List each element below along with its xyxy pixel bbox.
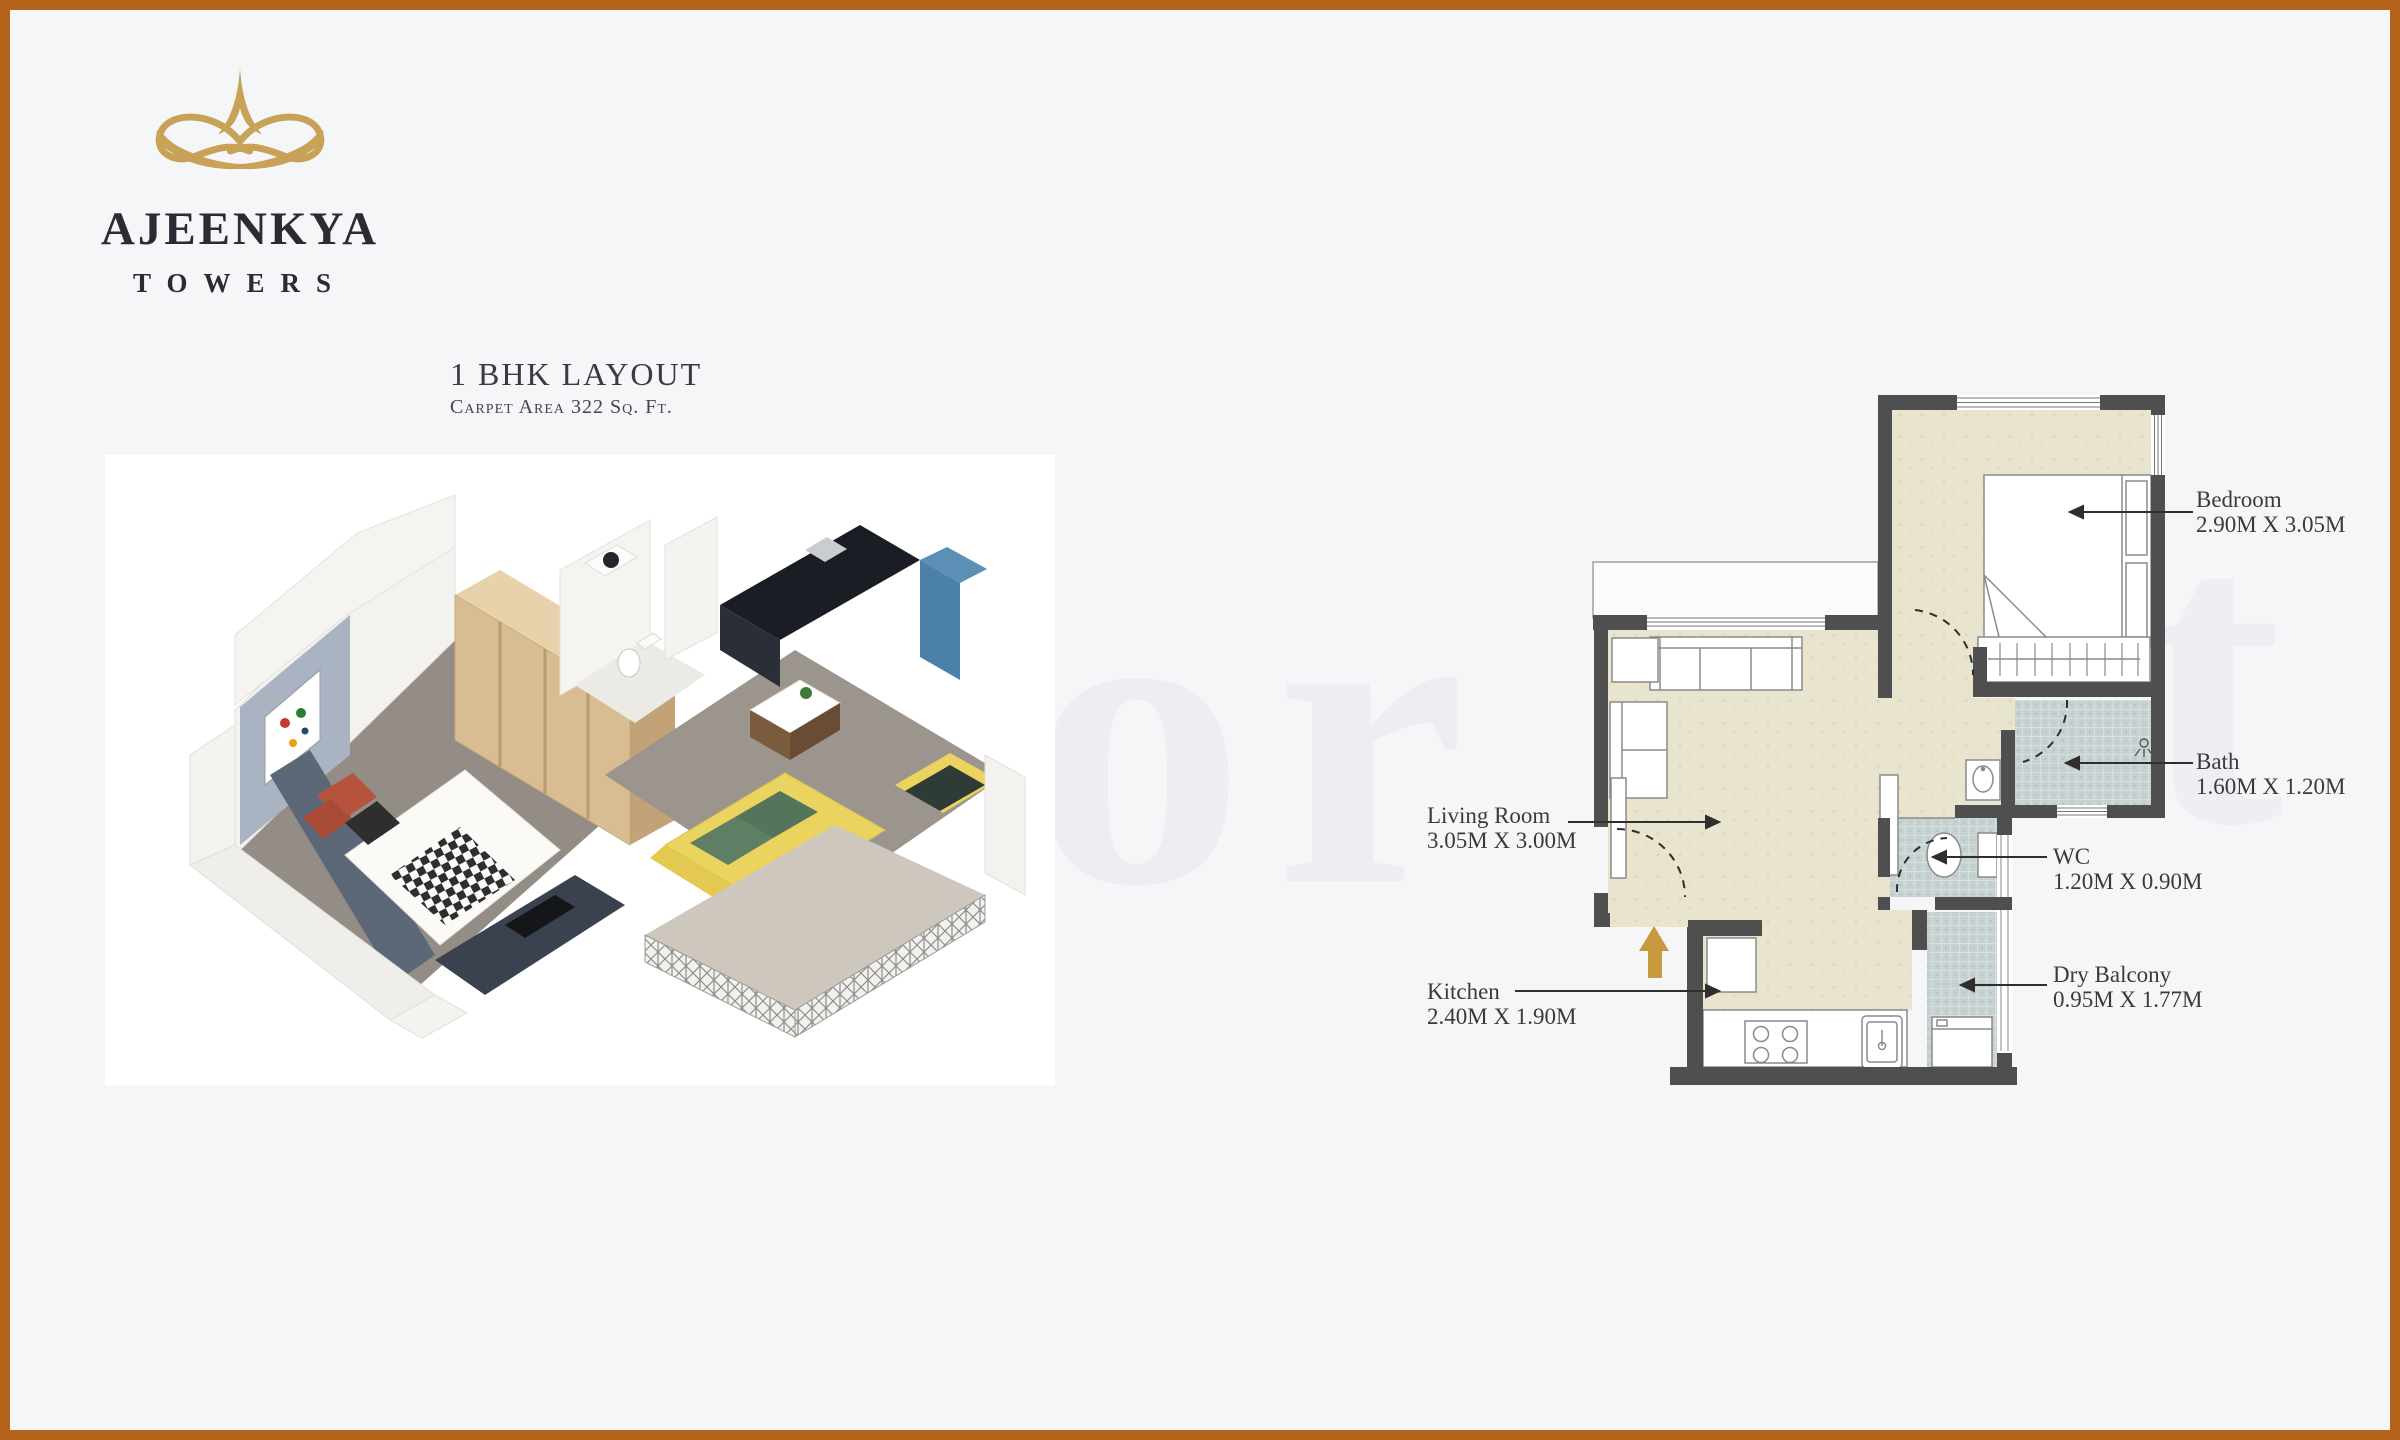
wash-area-unit <box>1932 1017 1992 1067</box>
label-living-room: Living Room <box>1427 803 1550 828</box>
layout-heading: 1 BHK LAYOUT Carpet Area 322 Sq. Ft. <box>450 356 870 419</box>
isometric-render-card <box>105 455 1055 1085</box>
carpet-area-subtitle: Carpet Area 322 Sq. Ft. <box>450 396 870 419</box>
brand-tagline: TOWERS <box>40 268 440 299</box>
kitchen-counter <box>1703 1010 1907 1068</box>
label-wc-dims: 1.20M X 0.90M <box>2053 869 2203 894</box>
floor-plan: Living Room 3.05M X 3.00M Kitchen 2.40M … <box>1410 385 2400 1115</box>
entry-direction-arrow <box>1639 926 1669 978</box>
logo-flourish-icon <box>130 50 350 202</box>
label-bedroom-dims: 2.90M X 3.05M <box>2196 512 2346 537</box>
isometric-3d-apartment-render <box>105 455 1055 1085</box>
label-bedroom: Bedroom <box>2196 487 2282 512</box>
label-living-room-dims: 3.05M X 3.00M <box>1427 828 1577 853</box>
bay-projection <box>1593 562 1878 618</box>
entrance-door-leaf <box>1611 778 1626 878</box>
label-bath: Bath <box>2196 749 2240 774</box>
side-table <box>1612 638 1658 682</box>
duct-strip <box>1997 818 2012 1057</box>
wardrobe <box>1978 637 2150 682</box>
washbasin <box>1966 760 2000 800</box>
sofa <box>1650 637 1802 690</box>
label-wc: WC <box>2053 844 2090 869</box>
label-dry-balcony: Dry Balcony <box>2053 962 2172 987</box>
brand-logo: AJEENKYA TOWERS <box>40 40 440 340</box>
brand-name: AJEENKYA <box>40 202 440 256</box>
label-kitchen: Kitchen <box>1427 979 1500 1004</box>
fridge-space <box>1707 938 1756 992</box>
brochure-page: or t AJEENKYA TOWERS 1 BHK LAYOUT Carpet… <box>0 0 2400 1440</box>
label-kitchen-dims: 2.40M X 1.90M <box>1427 1004 1577 1029</box>
page-title: 1 BHK LAYOUT <box>450 356 870 393</box>
label-dry-balcony-dims: 0.95M X 1.77M <box>2053 987 2203 1012</box>
label-bath-dims: 1.60M X 1.20M <box>2196 774 2346 799</box>
